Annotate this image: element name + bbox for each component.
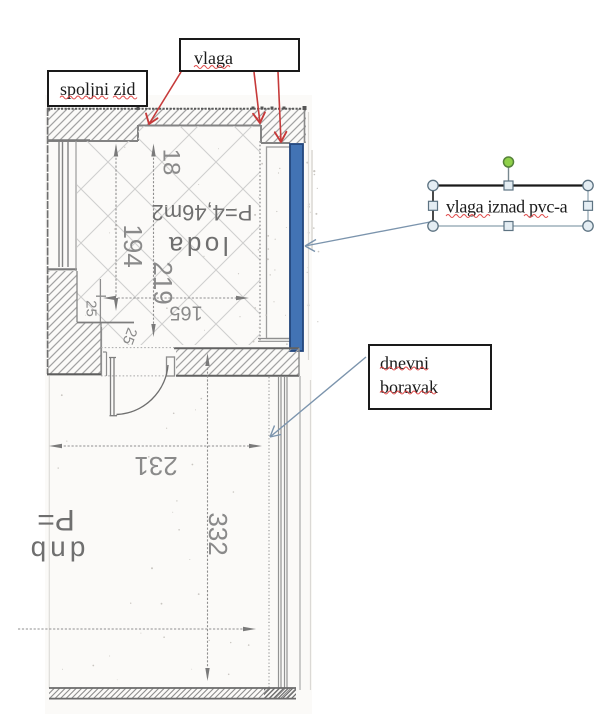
svg-text:vlaga iznad pvc-a: vlaga iznad pvc-a	[446, 197, 568, 217]
